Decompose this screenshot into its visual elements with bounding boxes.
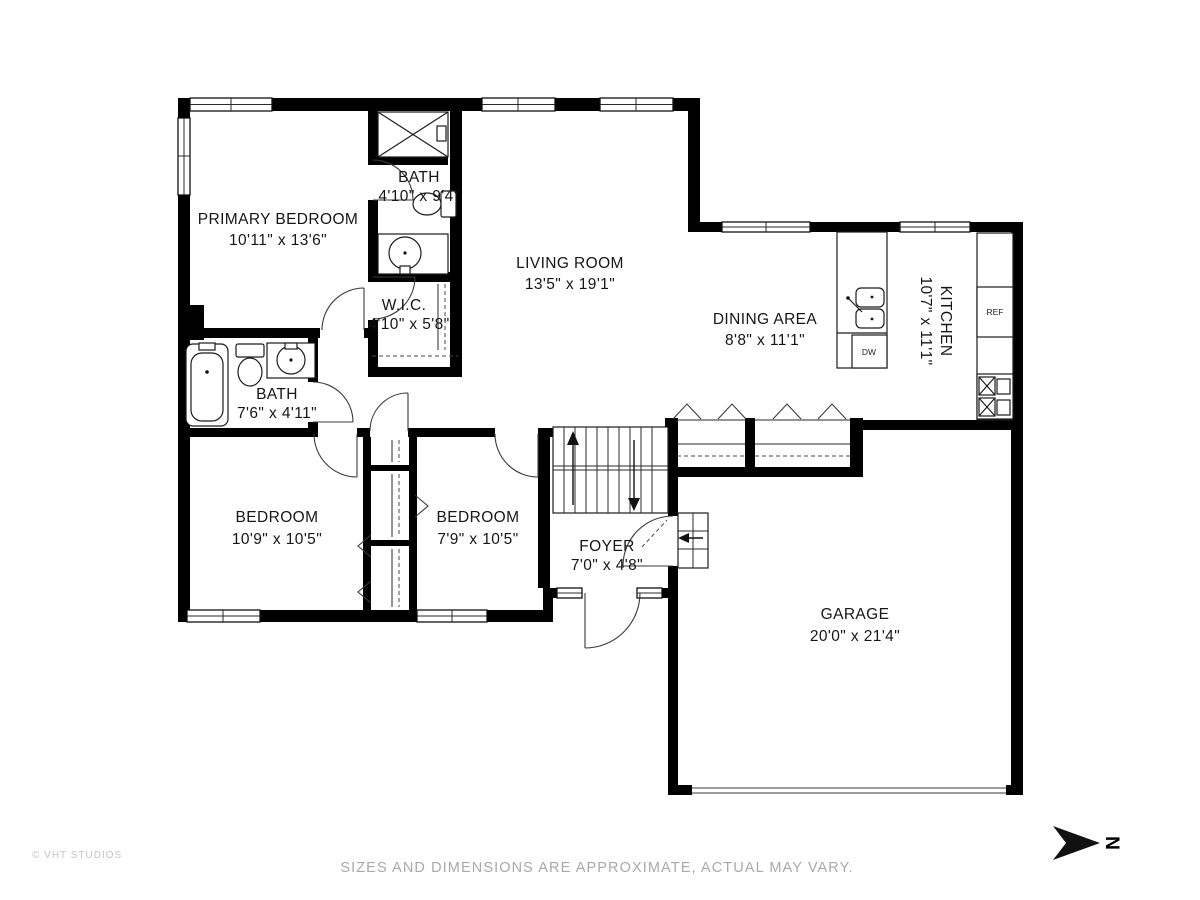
door-arc-primary-bedroom: [322, 288, 364, 330]
svg-text:W.I.C.: W.I.C.: [382, 297, 427, 314]
dishwasher-label: DW: [862, 347, 876, 357]
svg-text:GARAGE: GARAGE: [821, 606, 890, 623]
floorplan-svg: DW REF PRIMARY BEDROOM 10'11" x: [0, 0, 1200, 900]
floorplan-page: DW REF PRIMARY BEDROOM 10'11" x: [0, 0, 1200, 900]
north-arrow-icon: N: [1053, 826, 1122, 860]
room-label-dining-area: DINING AREA 8'8" x 11'1": [713, 311, 818, 349]
sink-icon: [378, 234, 448, 274]
garage-door: [692, 785, 1006, 795]
window: [600, 98, 673, 111]
svg-text:7'6" x 4'11": 7'6" x 4'11": [237, 405, 317, 422]
svg-text:7'9" x 10'5": 7'9" x 10'5": [437, 531, 518, 548]
svg-text:20'0" x 21'4": 20'0" x 21'4": [810, 628, 900, 645]
dishwasher-box: DW: [852, 335, 887, 368]
kitchen-counter: REF: [977, 233, 1013, 420]
svg-text:8'8" x 11'1": 8'8" x 11'1": [725, 332, 805, 349]
bathtub-icon: [186, 343, 228, 426]
svg-text:KITCHEN: KITCHEN: [937, 286, 954, 357]
svg-text:BEDROOM: BEDROOM: [236, 509, 319, 526]
footer: © VHT STUDIOS SIZES AND DIMENSIONS ARE A…: [32, 850, 854, 876]
window: [178, 118, 190, 195]
svg-text:BEDROOM: BEDROOM: [437, 509, 520, 526]
door-arc-front-door: [585, 593, 640, 648]
toilet-icon: [236, 344, 264, 386]
svg-text:DINING AREA: DINING AREA: [713, 311, 818, 328]
door-arc-bedroom-left: [314, 434, 357, 477]
north-label: N: [1101, 836, 1122, 850]
shower-icon: [378, 112, 448, 157]
svg-text:7'0" x 4'8": 7'0" x 4'8": [571, 557, 643, 574]
door-arc-hall-closet: [370, 393, 408, 431]
svg-text:4'10" x 5'8": 4'10" x 5'8": [368, 316, 449, 333]
svg-text:10'11" x 13'6": 10'11" x 13'6": [229, 232, 327, 249]
door-arc-hall-bath: [313, 382, 353, 422]
refrigerator-label: REF: [987, 307, 1004, 317]
closet-chevrons-dining: [673, 404, 846, 419]
window: [722, 222, 810, 232]
copyright-text: © VHT STUDIOS: [32, 850, 122, 861]
svg-text:4'10" x 9'4": 4'10" x 9'4": [378, 188, 459, 205]
room-label-foyer: FOYER 7'0" x 4'8": [571, 538, 643, 574]
svg-text:13'5" x 19'1": 13'5" x 19'1": [525, 276, 615, 293]
svg-text:LIVING ROOM: LIVING ROOM: [516, 255, 624, 272]
refrigerator-box: REF: [977, 287, 1013, 337]
room-label-wic: W.I.C. 4'10" x 5'8": [368, 297, 449, 333]
window: [637, 588, 662, 598]
svg-text:BATH: BATH: [256, 386, 298, 403]
sink-icon: [267, 343, 315, 378]
svg-text:10'9" x 10'5": 10'9" x 10'5": [232, 531, 322, 548]
door-arc-bedroom-right: [495, 434, 538, 477]
room-label-garage: GARAGE 20'0" x 21'4": [810, 606, 900, 645]
kitchen-island: DW: [837, 232, 887, 368]
room-label-primary-bedroom: PRIMARY BEDROOM 10'11" x 13'6": [198, 211, 358, 249]
room-label-living-room: LIVING ROOM 13'5" x 19'1": [516, 255, 624, 293]
room-label-bath-primary: BATH 4'10" x 9'4": [378, 169, 459, 205]
garage-steps: [678, 513, 708, 568]
window: [190, 98, 272, 111]
stove-icon: [977, 374, 1013, 419]
svg-text:FOYER: FOYER: [579, 538, 634, 555]
window: [557, 588, 582, 598]
room-label-bedroom-left: BEDROOM 10'9" x 10'5": [232, 509, 322, 548]
window: [900, 222, 970, 232]
window: [417, 610, 487, 622]
window: [187, 610, 260, 622]
window: [482, 98, 555, 111]
disclaimer-text: SIZES AND DIMENSIONS ARE APPROXIMATE, AC…: [340, 860, 853, 876]
svg-text:BATH: BATH: [398, 169, 440, 186]
room-label-bedroom-right: BEDROOM 7'9" x 10'5": [437, 509, 520, 548]
room-label-kitchen: KITCHEN 10'7" x 11'1": [917, 276, 954, 365]
door-swings: [313, 160, 846, 648]
svg-text:10'7" x 11'1": 10'7" x 11'1": [917, 276, 934, 365]
room-label-bath-hall: BATH 7'6" x 4'11": [237, 386, 317, 422]
svg-text:PRIMARY BEDROOM: PRIMARY BEDROOM: [198, 211, 358, 228]
